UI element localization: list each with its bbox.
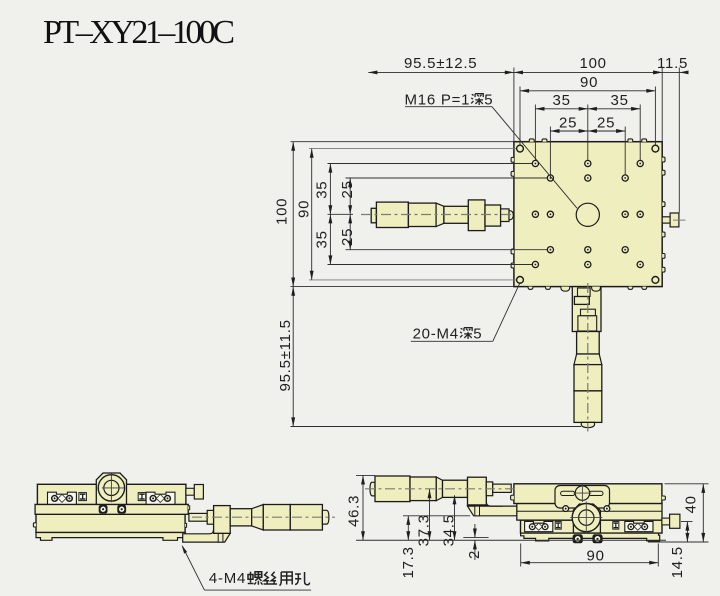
svg-text:35: 35: [314, 230, 331, 248]
svg-text:35: 35: [553, 92, 571, 109]
svg-text:14.5: 14.5: [669, 546, 686, 578]
svg-text:11.5: 11.5: [657, 55, 688, 72]
svg-text:35: 35: [611, 92, 629, 109]
svg-text:25: 25: [339, 180, 356, 198]
svg-text:90: 90: [580, 74, 598, 91]
svg-text:2: 2: [466, 550, 483, 559]
svg-text:95.5±11.5: 95.5±11.5: [277, 319, 294, 391]
svg-text:25: 25: [597, 115, 615, 132]
svg-text:90: 90: [296, 200, 313, 218]
svg-text:34.5: 34.5: [441, 514, 458, 546]
svg-text:90: 90: [587, 548, 605, 565]
svg-text:35: 35: [314, 181, 331, 199]
svg-text:95.5±12.5: 95.5±12.5: [404, 55, 477, 72]
svg-text:4-M4: 4-M4: [209, 570, 246, 587]
svg-text:PT–XY21–100C: PT–XY21–100C: [43, 14, 235, 51]
svg-text:100: 100: [580, 55, 607, 72]
svg-text:M16 P=1: M16 P=1: [405, 92, 471, 109]
svg-text:17.3: 17.3: [400, 546, 417, 578]
svg-text:5: 5: [484, 92, 493, 109]
svg-text:25: 25: [559, 115, 577, 132]
svg-text:5: 5: [473, 326, 482, 343]
svg-text:25: 25: [339, 228, 356, 246]
svg-text:20-M4: 20-M4: [413, 326, 459, 343]
svg-text:100: 100: [274, 198, 291, 225]
svg-text:37.3: 37.3: [415, 514, 432, 546]
svg-text:46.3: 46.3: [346, 495, 363, 527]
svg-text:40: 40: [683, 495, 700, 513]
